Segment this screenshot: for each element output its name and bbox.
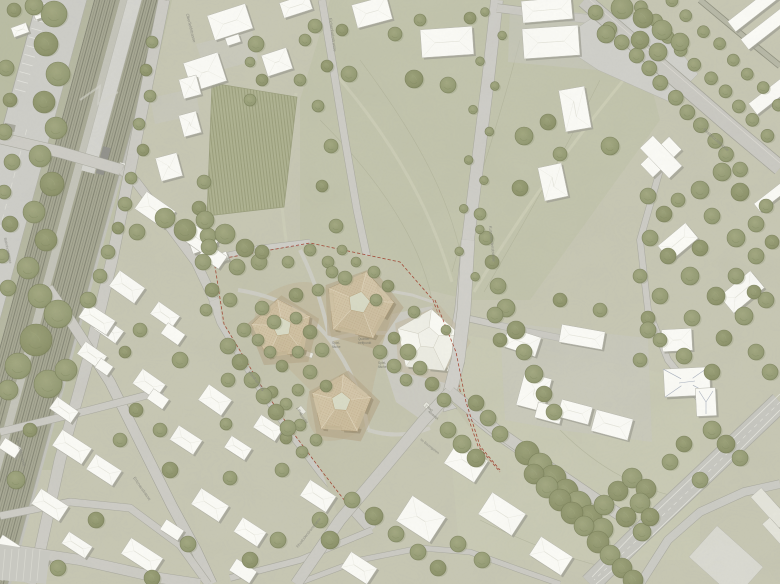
svg-text:treffpunkt: treffpunkt bbox=[358, 341, 371, 345]
svg-text:fläche: fläche bbox=[332, 345, 341, 349]
svg-text:fläche: fläche bbox=[378, 365, 387, 369]
